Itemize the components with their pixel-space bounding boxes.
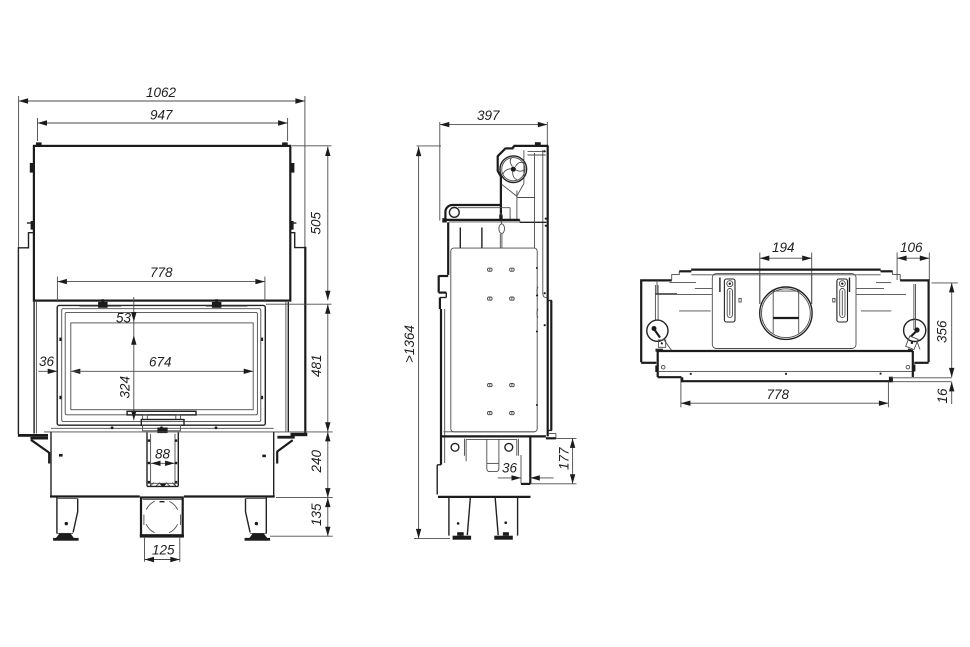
svg-text:135: 135 xyxy=(309,503,324,526)
svg-text:177: 177 xyxy=(557,447,572,470)
svg-text:106: 106 xyxy=(900,240,923,255)
svg-text:1062: 1062 xyxy=(146,85,177,100)
svg-text:36: 36 xyxy=(502,461,518,476)
svg-text:397: 397 xyxy=(477,108,500,123)
svg-text:505: 505 xyxy=(309,211,324,234)
svg-text:481: 481 xyxy=(309,354,324,377)
svg-text:36: 36 xyxy=(39,354,55,369)
svg-text:194: 194 xyxy=(772,240,795,255)
svg-text:53: 53 xyxy=(116,311,132,326)
svg-text:125: 125 xyxy=(152,543,175,558)
svg-text:947: 947 xyxy=(150,108,173,123)
svg-text:16: 16 xyxy=(935,388,950,404)
svg-text:356: 356 xyxy=(935,320,950,343)
svg-text:674: 674 xyxy=(149,355,172,370)
svg-text:324: 324 xyxy=(118,376,133,399)
svg-text:240: 240 xyxy=(309,449,324,473)
svg-text:>1364: >1364 xyxy=(402,325,417,363)
svg-text:778: 778 xyxy=(150,265,173,280)
svg-text:778: 778 xyxy=(767,387,790,402)
svg-text:88: 88 xyxy=(155,447,171,462)
